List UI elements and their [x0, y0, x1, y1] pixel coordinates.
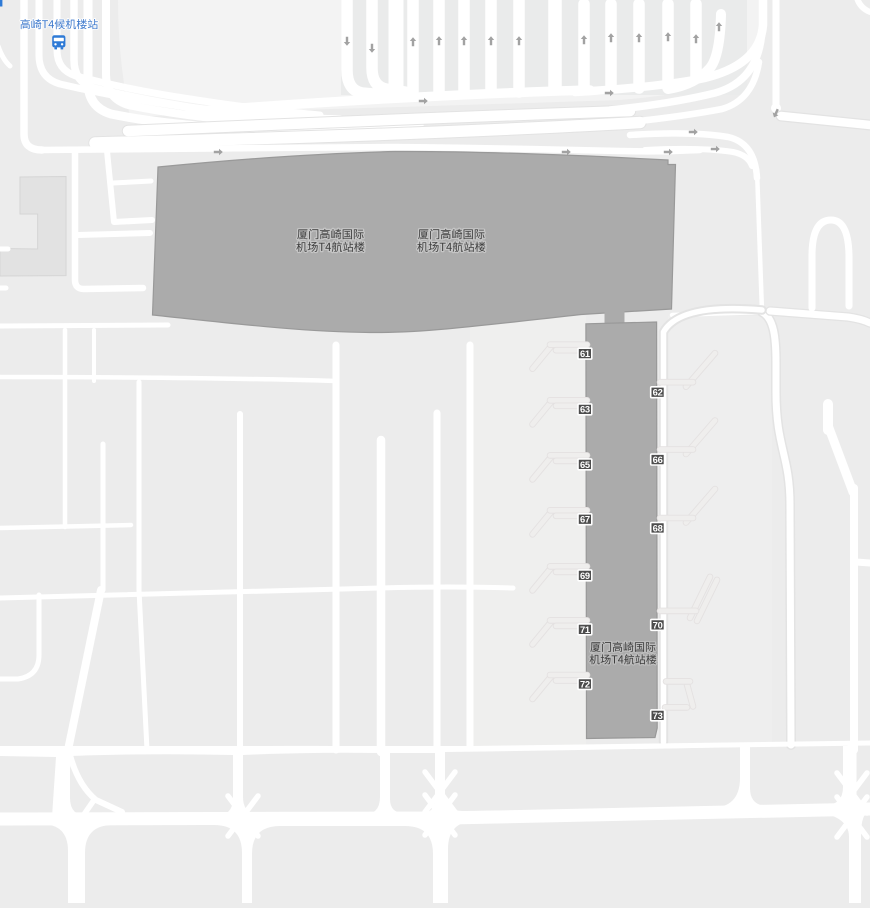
svg-text:62: 62: [653, 387, 663, 398]
svg-text:61: 61: [580, 348, 590, 359]
svg-text:69: 69: [580, 570, 590, 581]
svg-text:72: 72: [580, 678, 590, 689]
svg-text:65: 65: [580, 459, 590, 470]
svg-text:73: 73: [653, 710, 663, 721]
svg-text:67: 67: [580, 514, 590, 525]
svg-text:68: 68: [653, 522, 663, 533]
svg-text:63: 63: [580, 404, 590, 415]
svg-text:71: 71: [580, 624, 590, 635]
svg-text:70: 70: [653, 619, 663, 630]
svg-text:66: 66: [653, 454, 663, 465]
